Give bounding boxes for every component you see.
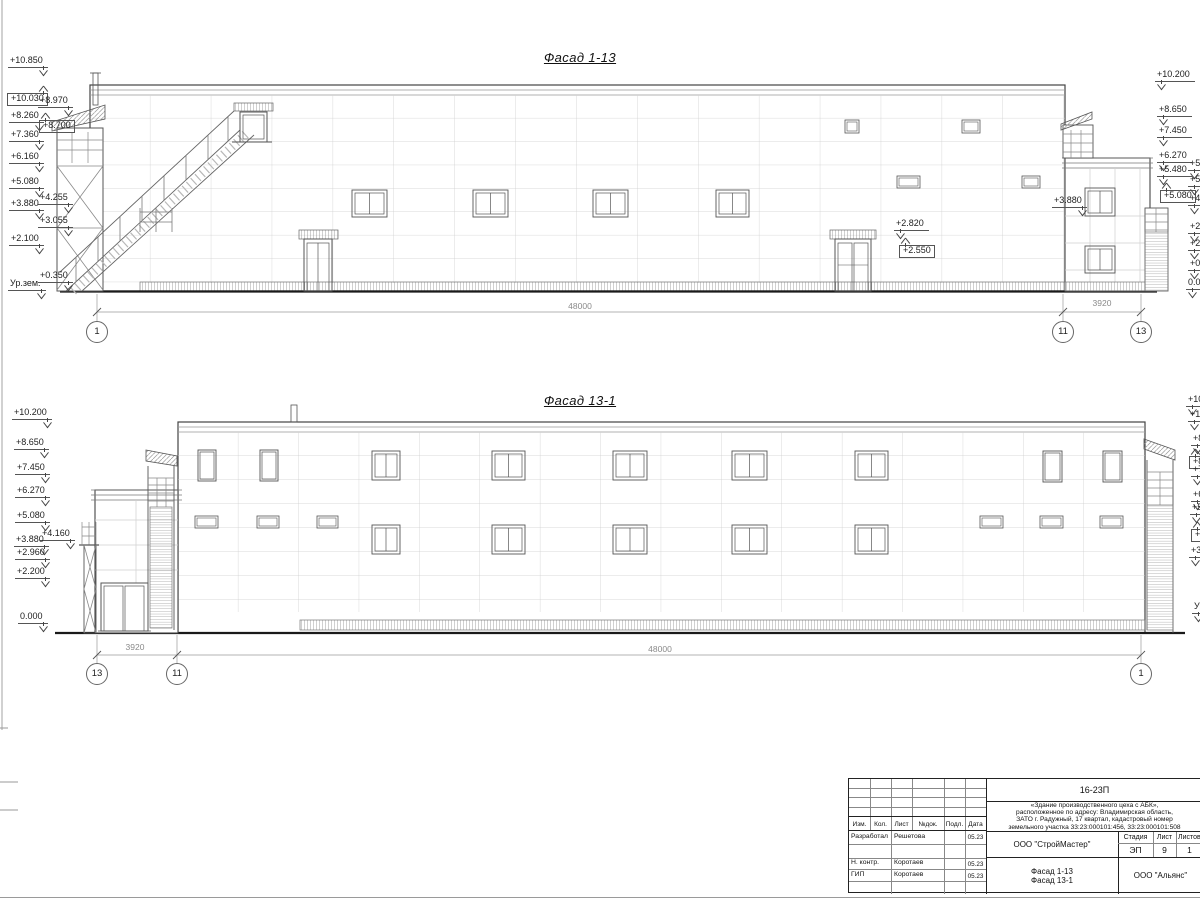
level-arrow-icon — [1078, 207, 1087, 215]
elevation-mark: +5. — [1188, 175, 1200, 187]
level-arrow-icon — [41, 578, 50, 586]
level-arrow-icon — [901, 238, 910, 246]
tb-role-2: Н. контр. — [851, 859, 891, 866]
project-description-line3: ЗАТО г. Радужный, 17 квартал, кадастровы… — [989, 816, 1200, 823]
level-arrow-icon — [1193, 522, 1200, 530]
elevation-mark: +2.100 — [9, 234, 44, 246]
level-arrow-icon — [43, 419, 52, 427]
axis-bubble-13-f2: 13 — [86, 663, 108, 685]
elevation-mark: +2.200 — [15, 567, 50, 579]
level-arrow-icon — [64, 204, 73, 212]
elevation-mark: +5 — [1191, 529, 1200, 542]
level-arrow-icon — [896, 230, 905, 238]
elevation-mark: +7.450 — [15, 463, 50, 475]
sheet-value: 9 — [1153, 843, 1176, 857]
elevation-mark: +6.270 — [1157, 151, 1192, 163]
level-arrow-icon — [64, 227, 73, 235]
tb-col-kol: Кол. — [870, 818, 891, 830]
level-arrow-icon — [41, 474, 50, 482]
sheets-value: 1 — [1176, 843, 1200, 857]
elevation-mark: +3.880 — [1052, 196, 1087, 208]
level-arrow-icon — [1162, 183, 1171, 191]
tb-name-2: Коротаев — [894, 859, 942, 866]
tb-role-0: Разработал — [851, 833, 891, 840]
elevation-mark: +10 — [1186, 395, 1200, 407]
tb-col-data: Дата — [965, 818, 986, 830]
tb-col-ndok: №док. — [912, 818, 944, 830]
level-arrow-icon — [1192, 514, 1200, 522]
tb-name-3: Коротаев — [894, 871, 942, 878]
elevation-mark: +3.055 — [38, 216, 73, 228]
elevation-mark: +7 — [1191, 465, 1200, 477]
elevation-mark: +5.080 — [15, 511, 50, 523]
project-description-line4: земельного участка 33:23:000101:456, 33:… — [989, 824, 1200, 831]
level-arrow-icon — [39, 86, 48, 94]
level-arrow-icon — [35, 163, 44, 171]
elevation-mark: +2.820 — [894, 219, 929, 231]
elevation-mark: +6.270 — [15, 486, 50, 498]
tb-col-izm: Изм. — [849, 818, 870, 830]
level-arrow-icon — [1194, 613, 1200, 621]
facade2-title: Фасад 13-1 — [480, 393, 680, 408]
level-arrow-icon — [1188, 289, 1197, 297]
elevation-mark: +6 — [1191, 490, 1200, 502]
elevation-mark: 0.000 — [18, 612, 48, 624]
stage-value: ЭП — [1118, 843, 1153, 857]
stage-label: Стадия — [1118, 831, 1153, 843]
elevation-mark: +8.700 — [39, 120, 75, 133]
level-arrow-icon — [41, 113, 50, 121]
level-arrow-icon — [41, 497, 50, 505]
drawing-sheet: Фасад 1-13 Фасад 13-1 48000 3920 3920 48… — [0, 0, 1200, 900]
elevation-mark: 0.0 — [1186, 278, 1200, 290]
tb-role-3: ГИП — [851, 871, 891, 878]
elevation-mark: +5.480 — [1157, 165, 1192, 177]
axis-bubble-11-f2: 11 — [166, 663, 188, 685]
elevation-mark: +8.970 — [38, 96, 73, 108]
tb-date-3: 05.23 — [965, 871, 986, 881]
elevation-mark: +6.160 — [9, 152, 44, 164]
level-arrow-icon — [37, 290, 46, 298]
level-arrow-icon — [1190, 205, 1199, 213]
elevation-mark: +2.960 — [15, 548, 50, 560]
elevation-mark: Ур.зем. — [8, 279, 46, 291]
drawing-linework — [0, 0, 1200, 900]
elevation-mark: +3.880 — [14, 535, 49, 547]
facade1-dim-48000: 48000 — [520, 301, 640, 311]
sheets-label: Листов — [1176, 831, 1200, 843]
level-arrow-icon — [35, 141, 44, 149]
design-org: ООО "СтройМастер" — [986, 831, 1118, 857]
facade2-dim-48000: 48000 — [600, 644, 720, 654]
elevation-mark: +10 — [1188, 410, 1200, 422]
elevation-mark: +0. — [1188, 259, 1200, 271]
project-description: «Здание производственного цеха с АБК», р… — [989, 802, 1200, 831]
level-arrow-icon — [1193, 476, 1200, 484]
view-name: Фасад 1-13 Фасад 13-1 — [986, 857, 1118, 894]
level-arrow-icon — [1190, 250, 1199, 258]
elevation-mark: +4. — [1188, 194, 1200, 206]
elevation-mark: +8.650 — [14, 438, 49, 450]
title-block: Изм. Кол. Лист №док. Подл. Дата Разработ… — [848, 778, 1200, 893]
elevation-mark: +8.650 — [1157, 105, 1192, 117]
level-arrow-icon — [64, 282, 73, 290]
facade1-title: Фасад 1-13 — [480, 50, 680, 65]
view-name-line2: Фасад 13-1 — [1031, 876, 1073, 885]
facade2-dim-3920: 3920 — [107, 642, 163, 652]
contractor-org: ООО "Альянс" — [1118, 857, 1200, 894]
level-arrow-icon — [39, 623, 48, 631]
elevation-mark: +7.360 — [9, 130, 44, 142]
level-arrow-icon — [64, 107, 73, 115]
elevation-mark: +10.850 — [8, 56, 48, 68]
level-arrow-icon — [35, 245, 44, 253]
level-arrow-icon — [1157, 81, 1166, 89]
elevation-mark: +5.080 — [9, 177, 44, 189]
elevation-mark: +2. — [1188, 239, 1200, 251]
facade1-dim-3920: 3920 — [1074, 298, 1130, 308]
tb-name-0: Решетова — [894, 833, 942, 840]
elevation-mark: +5. — [1188, 159, 1200, 171]
level-arrow-icon — [1191, 449, 1200, 457]
elevation-mark: +2. — [1188, 222, 1200, 234]
elevation-mark: +10.200 — [12, 408, 52, 420]
level-arrow-icon — [40, 449, 49, 457]
elevation-mark: +3.880 — [9, 199, 44, 211]
axis-bubble-11-f1: 11 — [1052, 321, 1074, 343]
elevation-mark: +7.450 — [1157, 126, 1192, 138]
level-arrow-icon — [1159, 137, 1168, 145]
tb-date-2: 05.23 — [965, 859, 986, 869]
axis-bubble-1-f1: 1 — [86, 321, 108, 343]
tb-date-0: 05.23 — [965, 832, 986, 842]
axis-bubble-13-f1: 13 — [1130, 321, 1152, 343]
elevation-mark: +2.550 — [899, 245, 935, 258]
level-arrow-icon — [1190, 421, 1199, 429]
elevation-mark: +8 — [1191, 434, 1200, 446]
level-arrow-icon — [39, 67, 48, 75]
elevation-mark: +3 — [1189, 546, 1200, 558]
axis-bubble-1-f2: 1 — [1130, 663, 1152, 685]
tb-col-list: Лист — [891, 818, 912, 830]
level-arrow-icon — [1191, 557, 1200, 565]
elevation-mark: Ур — [1192, 602, 1200, 614]
doc-code: 16-23П — [986, 779, 1200, 801]
elevation-mark: +10.200 — [1155, 70, 1195, 82]
view-name-line1: Фасад 1-13 — [1031, 867, 1073, 876]
sheet-label: Лист — [1153, 831, 1176, 843]
level-arrow-icon — [66, 540, 75, 548]
level-arrow-icon — [1159, 116, 1168, 124]
tb-col-podl: Подл. — [944, 818, 965, 830]
elevation-mark: +5 — [1190, 503, 1200, 515]
